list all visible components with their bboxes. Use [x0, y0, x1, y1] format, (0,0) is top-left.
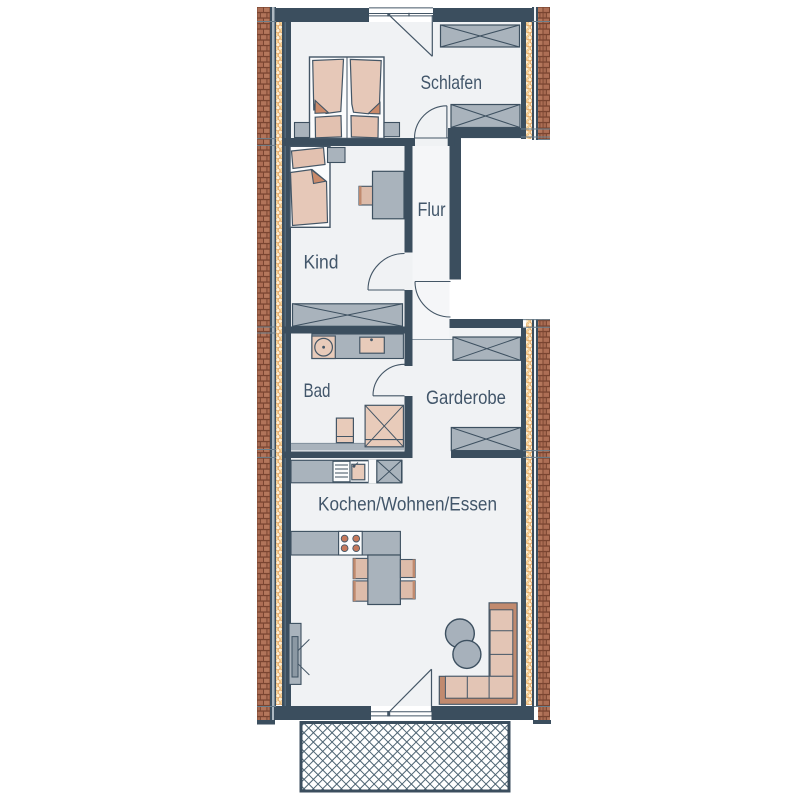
svg-text:Garderobe: Garderobe [426, 387, 506, 409]
svg-text:Bad: Bad [304, 380, 331, 402]
svg-text:Kind: Kind [304, 252, 339, 274]
svg-text:Kochen/Wohnen/Essen: Kochen/Wohnen/Essen [318, 494, 497, 516]
svg-text:Flur: Flur [418, 199, 446, 221]
svg-text:Schlafen: Schlafen [421, 72, 483, 94]
